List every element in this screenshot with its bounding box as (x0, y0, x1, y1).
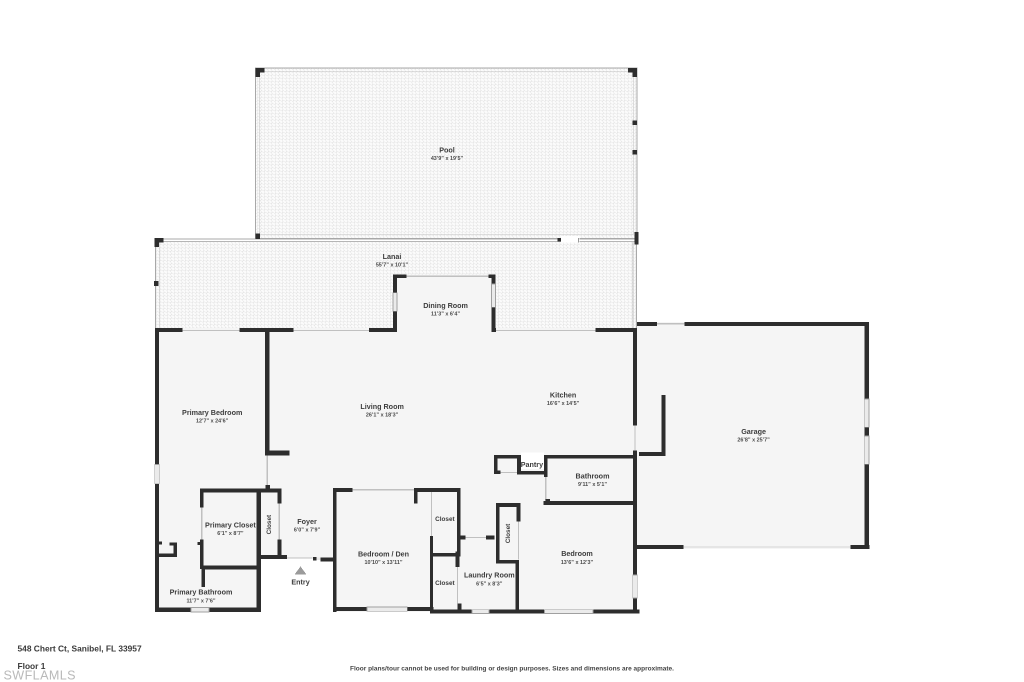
svg-text:Pool: Pool (439, 146, 455, 155)
svg-text:Dining Room: Dining Room (423, 301, 468, 310)
svg-text:Closet: Closet (435, 580, 455, 587)
svg-text:Living Room: Living Room (360, 402, 404, 411)
svg-text:548 Chert Ct, Sanibel, FL 3395: 548 Chert Ct, Sanibel, FL 33957 (18, 644, 142, 654)
svg-text:6’1” x 8’7”: 6’1” x 8’7” (217, 531, 244, 537)
svg-text:9’11” x 5’1”: 9’11” x 5’1” (578, 482, 607, 488)
svg-text:SWFLAMLS: SWFLAMLS (4, 669, 76, 682)
svg-text:Bedroom: Bedroom (561, 549, 593, 558)
svg-text:13’6” x 12’3”: 13’6” x 12’3” (561, 560, 594, 566)
svg-text:Lanai: Lanai (383, 252, 402, 261)
svg-text:26’8” x 25’7”: 26’8” x 25’7” (737, 438, 770, 444)
svg-text:11’7” x 7’6”: 11’7” x 7’6” (186, 598, 215, 604)
svg-text:Entry: Entry (291, 577, 309, 586)
svg-text:55’7” x 10’1”: 55’7” x 10’1” (376, 263, 409, 269)
svg-text:Bathroom: Bathroom (576, 472, 610, 481)
svg-text:12’7” x 24’6”: 12’7” x 24’6” (196, 419, 229, 425)
svg-text:Kitchen: Kitchen (550, 391, 576, 400)
svg-text:Primary Bathroom: Primary Bathroom (170, 588, 233, 597)
svg-text:16’6” x 14’5”: 16’6” x 14’5” (547, 401, 580, 407)
svg-text:Foyer: Foyer (297, 517, 317, 526)
svg-text:6’5” x 8’3”: 6’5” x 8’3” (476, 581, 503, 587)
svg-text:Primary Bedroom: Primary Bedroom (182, 408, 242, 417)
svg-text:10’10” x 13’11”: 10’10” x 13’11” (364, 560, 402, 566)
svg-text:Bedroom / Den: Bedroom / Den (358, 549, 409, 558)
svg-text:Closet: Closet (266, 514, 273, 534)
svg-text:6’0” x 7’9”: 6’0” x 7’9” (294, 528, 321, 534)
svg-text:26’1” x 18’3”: 26’1” x 18’3” (366, 413, 399, 419)
svg-text:Closet: Closet (435, 516, 455, 523)
svg-text:11’3” x 6’4”: 11’3” x 6’4” (431, 312, 460, 318)
svg-text:Primary Closet: Primary Closet (205, 520, 256, 529)
svg-text:Pantry: Pantry (521, 460, 543, 469)
svg-text:Laundry Room: Laundry Room (464, 571, 515, 580)
svg-text:43’9” x 19’5”: 43’9” x 19’5” (431, 156, 464, 162)
svg-text:Garage: Garage (741, 427, 766, 436)
svg-text:Closet: Closet (505, 523, 512, 543)
svg-text:Floor plans/tour cannot be use: Floor plans/tour cannot be used for buil… (350, 666, 674, 673)
